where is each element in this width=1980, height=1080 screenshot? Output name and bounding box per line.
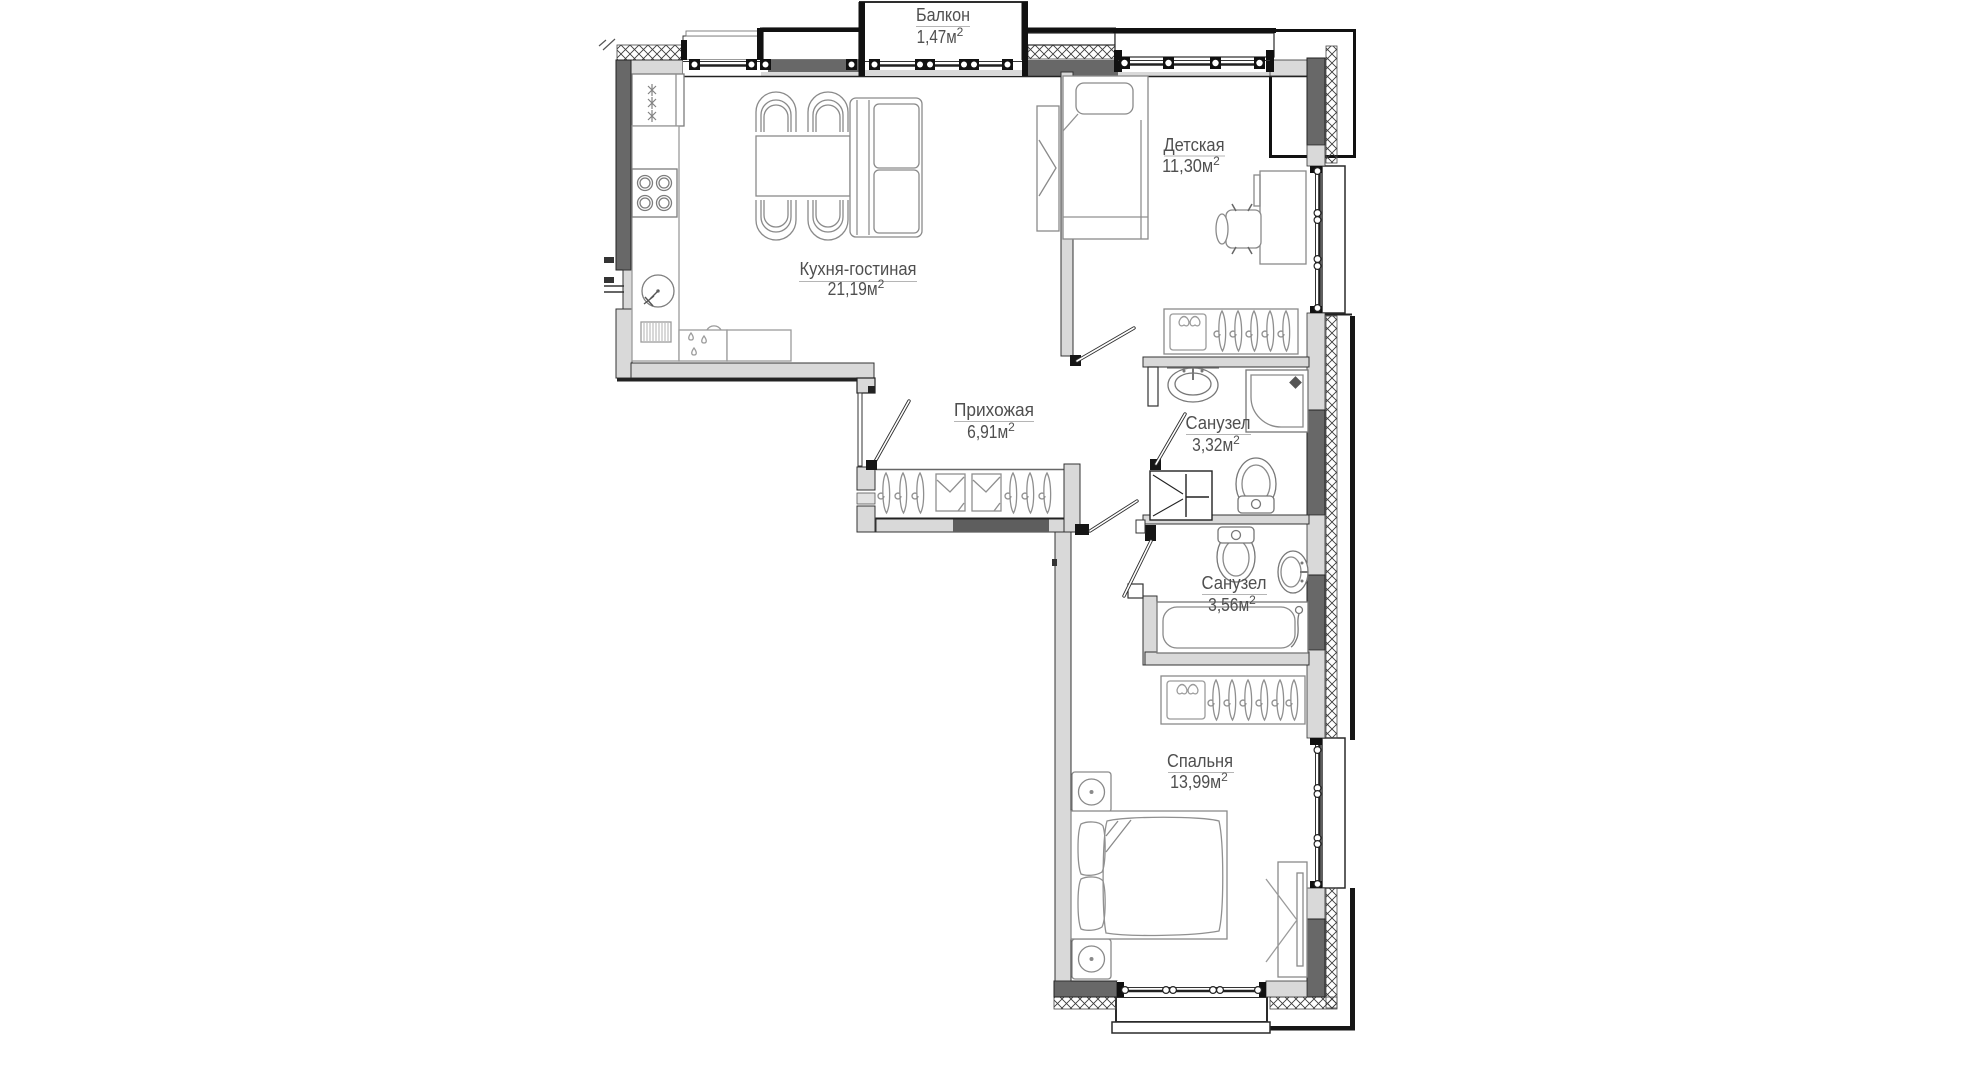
svg-text:Спальня: Спальня xyxy=(1167,750,1233,771)
svg-text:Санузел: Санузел xyxy=(1186,412,1251,433)
svg-text:21,19м2: 21,19м2 xyxy=(828,277,885,299)
svg-text:Детская: Детская xyxy=(1164,134,1225,155)
svg-text:11,30м2: 11,30м2 xyxy=(1162,154,1220,176)
svg-text:1,47м2: 1,47м2 xyxy=(917,25,964,47)
svg-text:13,99м2: 13,99м2 xyxy=(1170,770,1228,792)
svg-text:3,56м2: 3,56м2 xyxy=(1208,593,1256,615)
svg-text:Прихожая: Прихожая xyxy=(954,399,1034,420)
svg-text:3,32м2: 3,32м2 xyxy=(1192,433,1240,455)
svg-text:Санузел: Санузел xyxy=(1202,572,1267,593)
svg-text:6,91м2: 6,91м2 xyxy=(967,420,1015,442)
svg-text:Кухня-гостиная: Кухня-гостиная xyxy=(800,258,917,279)
svg-text:Балкон: Балкон xyxy=(916,4,970,25)
